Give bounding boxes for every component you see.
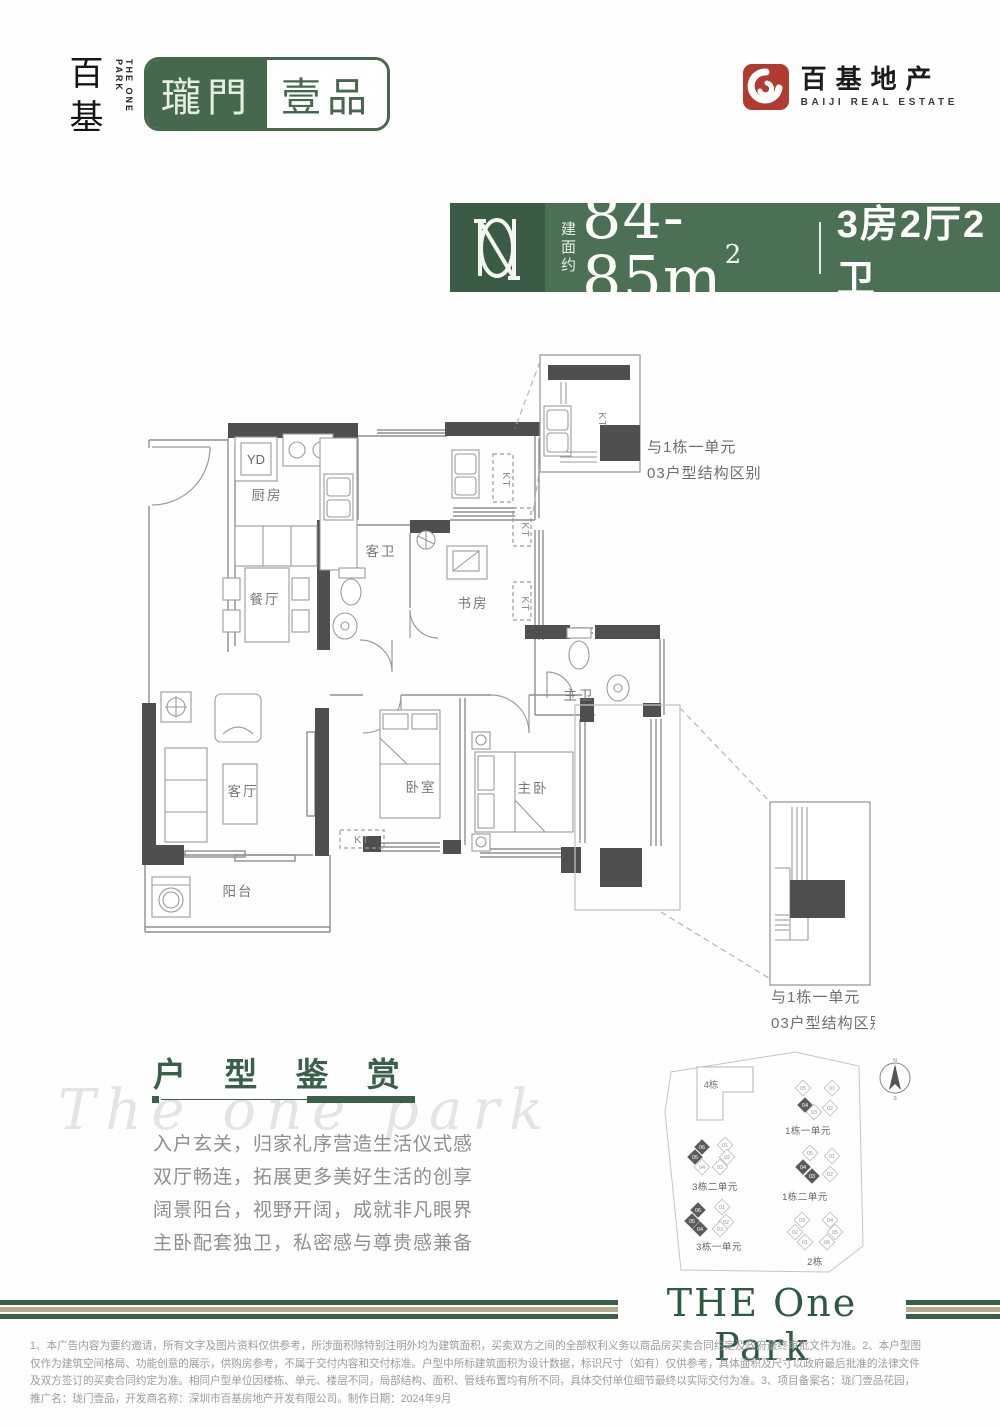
headline-band: 建面约 84-85m2 3房2厅2卫 (545, 203, 1000, 292)
disclaimer-line: 1、本广告内容为要约邀请，所有文字及图片资料仅供参考，所涉面积除特别注明外均为建… (30, 1338, 975, 1356)
disclaimer-line: 推广名：珑门壹品，开发商名称：深圳市百基房地产开发有限公司。制作日期：2024年… (30, 1391, 975, 1409)
kt-label: KT (596, 412, 608, 427)
rule-line (161, 1099, 307, 1100)
unit-number: 02 (724, 1155, 730, 1161)
project-seal-logo: 瓏門 壹品 (144, 57, 390, 131)
svg-text:S: S (893, 1096, 897, 1102)
unit-number: 06 (824, 1240, 830, 1246)
developer-name: 百基地产 (801, 64, 958, 94)
disclaimer-line: 仅作为建筑空间格局、功能创意的展示，供购房参考，不属于交付内容和交付标准。户型中… (30, 1356, 975, 1374)
callout-top-detail (540, 355, 640, 472)
svg-text:N: N (893, 1058, 897, 1064)
unit-number: 05 (692, 1155, 698, 1161)
kt-label: KT (519, 522, 531, 537)
unit-number: 03 (809, 1174, 815, 1180)
brand-subtitle-vertical: THE ONE PARK (114, 59, 134, 145)
cluster-label: 1栋二单元 (782, 1191, 828, 1203)
unit-number: 02 (792, 1230, 798, 1236)
cluster-label: 3栋一单元 (696, 1241, 742, 1253)
unit-number: 01 (829, 1086, 835, 1092)
yd-label: YD (247, 452, 265, 467)
rule-square (152, 1096, 159, 1103)
room-label: 客厅 (228, 783, 259, 799)
section-title: 户 型 鉴 赏 (153, 1048, 415, 1096)
appreciation-line: 主卧配套独卫，私密感与尊贵感兼备 (153, 1227, 513, 1260)
area-value: 84-85m2 (582, 186, 807, 310)
developer-logo-icon (743, 64, 789, 110)
unit-number: 04 (697, 1227, 703, 1233)
unit-number: 05 (689, 1219, 695, 1225)
room-label: 卧室 (406, 779, 437, 795)
room-label: 阳台 (223, 884, 254, 899)
plan-thin-walls (145, 422, 664, 932)
area-label: 建面约 (557, 221, 578, 275)
room-label: 书房 (458, 596, 489, 611)
swirl-icon (743, 64, 789, 110)
unit-number: 03 (799, 1218, 805, 1224)
cluster-label: 3栋二单元 (692, 1181, 738, 1193)
floorplan-drawing: 厨房餐厅客卫书房主卫客厅阳台卧室主卧 KTKTKTKTKT 与1栋一单元03户型… (95, 340, 875, 1040)
unit-number: 04 (802, 1103, 808, 1109)
unit-number: 01 (719, 1205, 725, 1211)
headline-banner: 建面约 84-85m2 3房2厅2卫 (450, 203, 1000, 292)
disclaimer-block: 1、本广告内容为要约邀请，所有文字及图片资料仅供参考，所涉面积除特别注明外均为建… (30, 1338, 975, 1408)
unit-number: 05 (800, 1086, 806, 1092)
brand-right: 百基地产 BAIJI REAL ESTATE (743, 64, 958, 110)
monogram-icon (450, 203, 545, 292)
room-label: 餐厅 (250, 592, 281, 607)
unit-number: 04 (800, 1165, 806, 1171)
room-label: 主卫 (564, 688, 595, 703)
seal-green-part: 瓏門 (147, 60, 267, 128)
callout-text: 与1栋一单元 (771, 988, 860, 1006)
plan-furniture (152, 434, 629, 917)
building-4-outline (697, 1067, 753, 1120)
appreciation-line: 双厅畅连，拓展更多美好生活的创享 (153, 1161, 513, 1194)
poster-page: 百基 THE ONE PARK 瓏門 壹品 百基地产 BAIJI REAL ES… (0, 0, 1000, 1426)
brand-name-vertical: 百基 (62, 55, 102, 143)
unit-number: 06 (695, 1208, 701, 1214)
unit-number: 05 (807, 1151, 813, 1157)
unit-number: 01 (829, 1154, 835, 1160)
kt-label: KT (519, 596, 531, 611)
unit-number: 01 (802, 1240, 808, 1246)
callout-text: 03户型结构区别 (647, 465, 762, 482)
building-label: 4栋 (704, 1079, 719, 1091)
unit-number: 03 (717, 1227, 723, 1233)
unit-number: 03 (811, 1110, 817, 1116)
appreciation-line: 入户玄关，归家礼序营造生活仪式感 (153, 1128, 513, 1161)
callout-bottom-detail (770, 802, 870, 985)
cluster-label: 1栋一单元 (785, 1125, 831, 1137)
brand-left: 百基 THE ONE PARK 瓏門 壹品 (62, 55, 390, 145)
siteplan-building-labels: 4栋 (704, 1079, 719, 1091)
unit-number: 02 (827, 1106, 833, 1112)
room-label: 厨房 (252, 488, 283, 503)
room-label: 主卧 (518, 781, 549, 796)
disclaimer-line: 及双方签订的买卖合同约定为准。相同户型单位因楼栋、单元、楼层不同，局部结构、面积… (30, 1373, 975, 1391)
developer-name-en: BAIJI REAL ESTATE (801, 97, 958, 108)
cluster-label: 2栋 (807, 1256, 823, 1268)
unit-number: 04 (827, 1218, 833, 1224)
siteplan-map: N S 4栋 050104030206010502040305010403020… (645, 1040, 975, 1290)
plan-doors (152, 447, 573, 733)
unit-number: 06 (699, 1145, 705, 1151)
kt-label: KT (500, 472, 512, 487)
unit-number: 02 (827, 1172, 833, 1178)
developer-name-block: 百基地产 BAIJI REAL ESTATE (801, 64, 958, 108)
appreciation-paragraph: 入户玄关，归家礼序营造生活仪式感双厅畅连，拓展更多美好生活的创享阔景阳台，视野开… (153, 1128, 513, 1260)
unit-number: 03 (717, 1165, 723, 1171)
kt-label: KT (354, 834, 369, 846)
appreciation-line: 阔景阳台，视野开阔，成就非凡眼界 (153, 1194, 513, 1227)
compass-icon: N S (880, 1058, 910, 1102)
layout-spec: 3房2厅2卫 (837, 193, 1000, 303)
seal-white-part: 壹品 (267, 60, 387, 128)
headline-divider (819, 222, 821, 274)
unit-number: 01 (722, 1143, 728, 1149)
area-superscript: 2 (725, 240, 743, 270)
room-label: 客卫 (366, 543, 397, 559)
rule-bar (307, 1096, 415, 1103)
unit-number: 05 (832, 1230, 838, 1236)
title-rule (152, 1096, 415, 1103)
unit-number: 04 (699, 1165, 705, 1171)
callout-text: 03户型结构区别 (771, 1015, 875, 1032)
callout-text: 与1栋一单元 (647, 438, 736, 456)
